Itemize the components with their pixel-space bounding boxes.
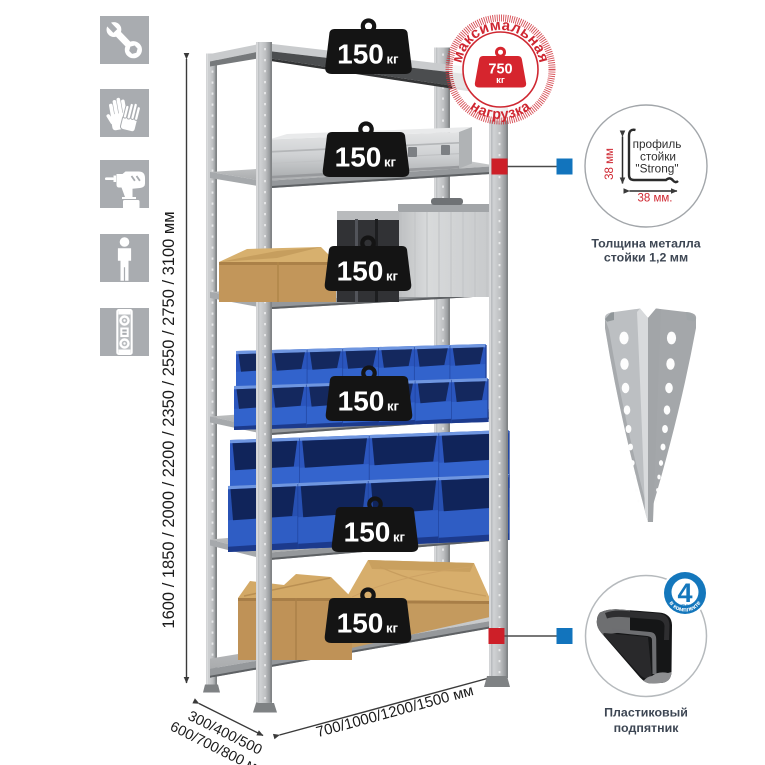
svg-text:кг: кг bbox=[496, 75, 505, 86]
svg-text:стойки 1,2 мм: стойки 1,2 мм bbox=[604, 251, 688, 265]
svg-text:38 мм.: 38 мм. bbox=[638, 193, 673, 205]
svg-text:"Strong": "Strong" bbox=[635, 162, 678, 176]
svg-text:Пластиковый: Пластиковый bbox=[604, 706, 688, 720]
svg-text:подпятник: подпятник bbox=[614, 721, 680, 735]
svg-text:Толщина металла: Толщина металла bbox=[591, 237, 700, 251]
svg-text:38 мм: 38 мм bbox=[604, 148, 616, 180]
svg-text:1600 / 1850 / 2000 / 2200 / 23: 1600 / 1850 / 2000 / 2200 / 2350 / 2550 … bbox=[160, 211, 178, 628]
